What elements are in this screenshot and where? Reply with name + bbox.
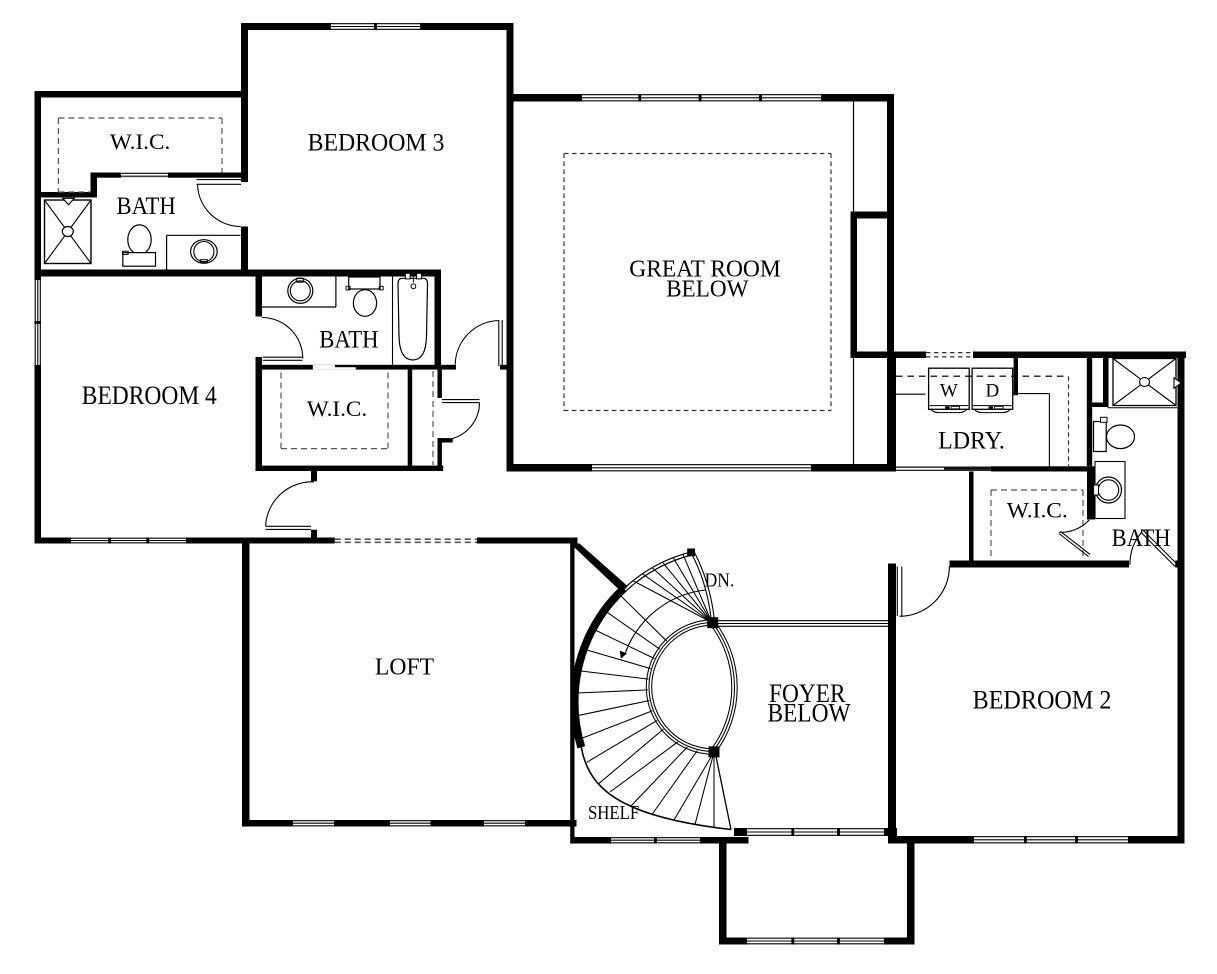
svg-text:W.I.C.: W.I.C. xyxy=(110,129,170,154)
svg-text:W.I.C.: W.I.C. xyxy=(1007,498,1068,523)
svg-text:SHELF: SHELF xyxy=(588,802,639,824)
svg-text:LOFT: LOFT xyxy=(375,654,434,681)
svg-text:BATH: BATH xyxy=(1112,525,1171,552)
svg-text:W: W xyxy=(940,381,958,402)
svg-text:BEDROOM 4: BEDROOM 4 xyxy=(82,381,217,410)
svg-text:W.I.C.: W.I.C. xyxy=(307,396,367,421)
svg-text:DN.: DN. xyxy=(705,571,735,592)
svg-text:BATH: BATH xyxy=(319,327,378,354)
svg-text:BELOW: BELOW xyxy=(666,276,749,302)
svg-text:BEDROOM 2: BEDROOM 2 xyxy=(973,686,1112,715)
svg-text:BEDROOM 3: BEDROOM 3 xyxy=(308,128,445,157)
svg-text:BELOW: BELOW xyxy=(767,698,851,727)
svg-text:D: D xyxy=(986,381,1000,402)
svg-text:LDRY.: LDRY. xyxy=(938,428,1005,455)
svg-text:BATH: BATH xyxy=(117,193,176,220)
